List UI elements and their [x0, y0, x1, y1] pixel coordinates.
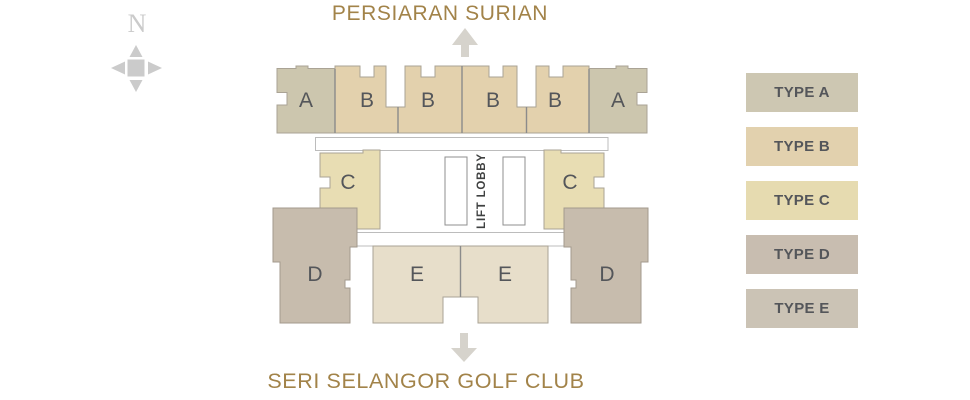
- lift-lobby-label: LIFT LOBBY: [476, 153, 488, 229]
- legend-item-type-a[interactable]: TYPE A: [746, 73, 858, 112]
- legend-item-type-b[interactable]: TYPE B: [746, 127, 858, 166]
- unit-label-a-right: A: [611, 89, 625, 112]
- legend: TYPE A TYPE B TYPE C TYPE D TYPE E: [746, 73, 858, 328]
- lift-shaft-left: [445, 157, 467, 225]
- unit-label-a-left: A: [299, 89, 313, 112]
- unit-label-e-right: E: [498, 263, 512, 286]
- unit-label-c-right: C: [562, 171, 577, 194]
- unit-label-b1: B: [360, 89, 374, 112]
- legend-item-type-e[interactable]: TYPE E: [746, 289, 858, 328]
- unit-label-b3: B: [486, 89, 500, 112]
- unit-label-d-right: D: [599, 263, 614, 286]
- unit-label-c-left: C: [340, 171, 355, 194]
- legend-item-type-c[interactable]: TYPE C: [746, 181, 858, 220]
- legend-item-type-d[interactable]: TYPE D: [746, 235, 858, 274]
- corridor-upper: [316, 138, 609, 151]
- site-plan-page: PERSIARAN SURIAN SERI SELANGOR GOLF CLUB…: [0, 0, 970, 400]
- down-arrow-icon: [451, 333, 477, 362]
- corridor-lower: [352, 233, 569, 247]
- unit-label-b4: B: [548, 89, 562, 112]
- unit-label-d-left: D: [307, 263, 322, 286]
- unit-label-e-left: E: [410, 263, 424, 286]
- up-arrow-icon: [452, 28, 478, 57]
- lift-shaft-right: [503, 157, 525, 225]
- unit-label-b2: B: [421, 89, 435, 112]
